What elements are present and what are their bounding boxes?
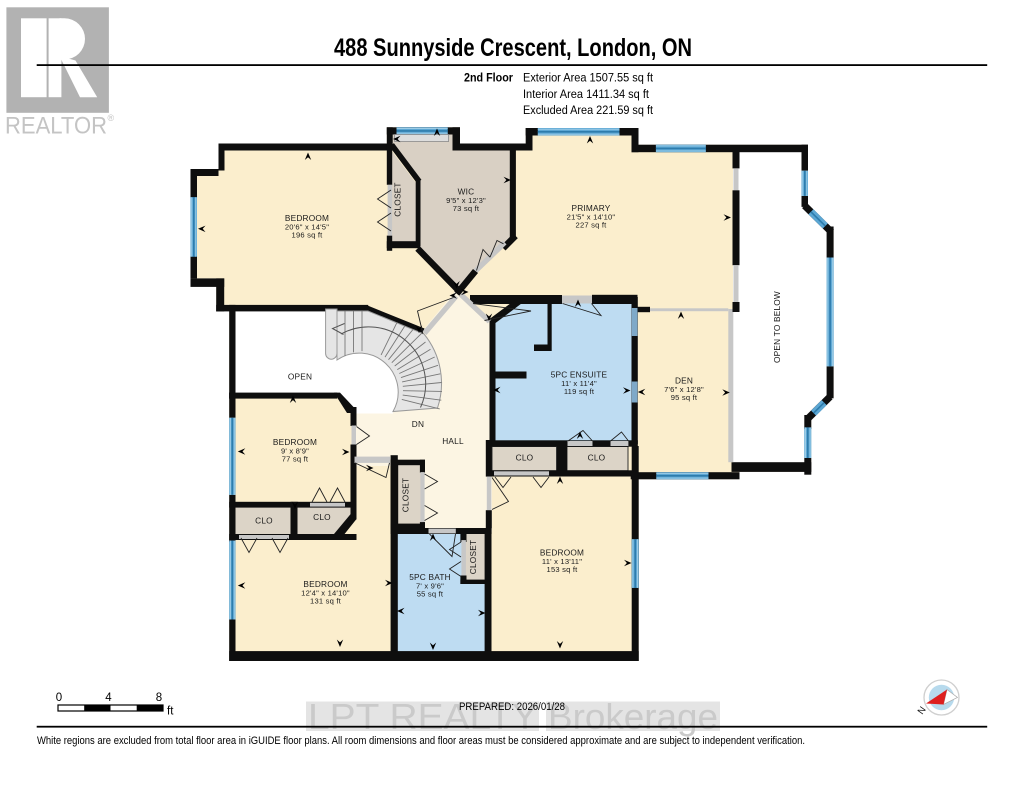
svg-text:REALTOR: REALTOR bbox=[5, 113, 107, 140]
svg-text:HALL: HALL bbox=[442, 436, 464, 446]
svg-text:ft: ft bbox=[167, 706, 174, 718]
svg-text:77 sq ft: 77 sq ft bbox=[282, 455, 309, 464]
svg-text:0: 0 bbox=[56, 692, 62, 704]
svg-text:White regions are excluded fro: White regions are excluded from total fl… bbox=[37, 735, 805, 747]
svg-text:OPEN TO BELOW: OPEN TO BELOW bbox=[772, 291, 782, 363]
svg-text:CLOSET: CLOSET bbox=[401, 478, 411, 512]
svg-text:DN: DN bbox=[412, 419, 424, 429]
svg-text:227 sq ft: 227 sq ft bbox=[576, 221, 608, 230]
svg-text:CLO: CLO bbox=[588, 453, 606, 463]
svg-text:Interior Area 1411.34 sq ft: Interior Area 1411.34 sq ft bbox=[523, 87, 650, 101]
svg-text:2nd Floor: 2nd Floor bbox=[464, 71, 513, 85]
svg-text:131 sq ft: 131 sq ft bbox=[310, 597, 342, 606]
svg-text:153 sq ft: 153 sq ft bbox=[547, 565, 579, 574]
svg-text:CLO: CLO bbox=[313, 512, 331, 522]
svg-text:Brokerage: Brokerage bbox=[548, 696, 718, 737]
svg-text:Exterior Area 1507.55 sq ft: Exterior Area 1507.55 sq ft bbox=[523, 71, 654, 85]
svg-text:®: ® bbox=[108, 113, 115, 123]
svg-text:CLO: CLO bbox=[255, 516, 273, 526]
svg-text:CLO: CLO bbox=[516, 453, 534, 463]
svg-text:55 sq ft: 55 sq ft bbox=[417, 590, 444, 599]
svg-text:Excluded Area 221.59 sq ft: Excluded Area 221.59 sq ft bbox=[523, 103, 654, 117]
svg-text:CLOSET: CLOSET bbox=[468, 540, 478, 574]
svg-text:119 sq ft: 119 sq ft bbox=[564, 387, 595, 396]
svg-text:8: 8 bbox=[156, 692, 162, 704]
svg-text:73 sq ft: 73 sq ft bbox=[453, 204, 480, 213]
svg-text:196 sq ft: 196 sq ft bbox=[292, 231, 324, 240]
svg-text:488 Sunnyside Crescent, London: 488 Sunnyside Crescent, London, ON bbox=[334, 34, 692, 62]
svg-text:OPEN: OPEN bbox=[288, 372, 312, 382]
svg-text:4: 4 bbox=[105, 692, 112, 704]
svg-text:PREPARED: 2026/01/28: PREPARED: 2026/01/28 bbox=[459, 701, 565, 713]
svg-text:CLOSET: CLOSET bbox=[393, 182, 403, 216]
svg-text:95 sq ft: 95 sq ft bbox=[671, 393, 698, 402]
